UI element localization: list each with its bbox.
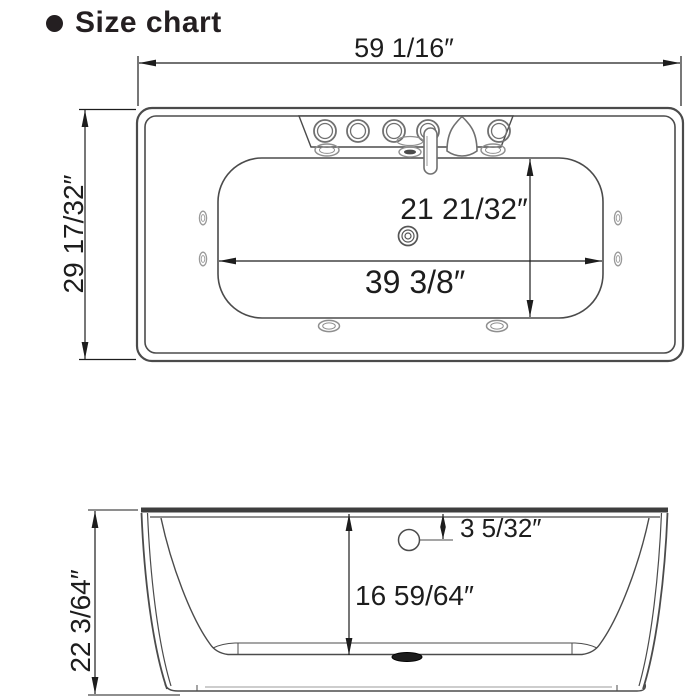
dim-label-overall-width: 29 17/32″ [58, 174, 89, 293]
dim-overall-width: 29 17/32″ [58, 110, 136, 360]
sprayer-icon [404, 150, 416, 155]
basin-floor-back-edge [213, 643, 597, 648]
dim-label-overall-height: 22 3/64″ [65, 569, 96, 672]
wall-jet [616, 256, 620, 263]
wall-jet [614, 252, 621, 266]
faucet-deck [299, 116, 513, 147]
floor-jet [491, 323, 504, 329]
dim-label-basin-width: 21 21/32″ [400, 193, 528, 226]
arrowhead [139, 60, 156, 67]
dim-basin-length: 39 3/8″ [219, 258, 602, 300]
bottom-jets [319, 320, 508, 331]
floor-jet [323, 323, 336, 329]
dim-label-basin-length: 39 3/8″ [365, 264, 465, 300]
top-view-dimensions: 59 1/16″ 29 17/32″ 21 21/32″ [58, 33, 681, 360]
dim-label-overall-length: 59 1/16″ [354, 33, 454, 63]
side-view-dimensions: 22 3/64″ 16 59/64″ 3 5/32″ [65, 510, 542, 695]
drain-icon [399, 227, 418, 246]
arrowhead [527, 300, 534, 317]
floor-jet [487, 320, 508, 331]
dim-overall-length: 59 1/16″ [138, 33, 681, 106]
arrowhead [663, 60, 680, 67]
size-chart-page: Size chart [0, 0, 700, 700]
tub-base [165, 684, 645, 691]
arrowhead [440, 514, 446, 527]
arrowhead [585, 258, 602, 265]
wall-jet [199, 252, 206, 266]
dimension-drawing: 59 1/16″ 29 17/32″ 21 21/32″ [0, 0, 700, 700]
arrowhead [440, 527, 446, 539]
arrowhead [527, 159, 534, 176]
dim-label-inner-depth: 16 59/64″ [355, 580, 474, 611]
arrowhead [92, 677, 99, 694]
arrowhead [219, 258, 236, 265]
arrowhead [82, 110, 89, 127]
wall-jet [616, 215, 620, 222]
dim-overall-height: 22 3/64″ [65, 510, 180, 695]
top-view [137, 108, 683, 361]
wall-jet [614, 211, 621, 225]
dim-inner-depth: 16 59/64″ [346, 514, 474, 655]
arrowhead [92, 511, 99, 528]
drain-side-icon [392, 653, 422, 662]
overflow-icon [399, 530, 420, 551]
dim-label-overflow-offset: 3 5/32″ [460, 513, 542, 543]
wall-jet [201, 256, 205, 263]
wall-jet [199, 211, 206, 225]
shower-wand [424, 128, 437, 174]
floor-jet [319, 320, 340, 331]
arrowhead [346, 638, 353, 655]
wall-jet [201, 215, 205, 222]
arrowhead [82, 342, 89, 359]
